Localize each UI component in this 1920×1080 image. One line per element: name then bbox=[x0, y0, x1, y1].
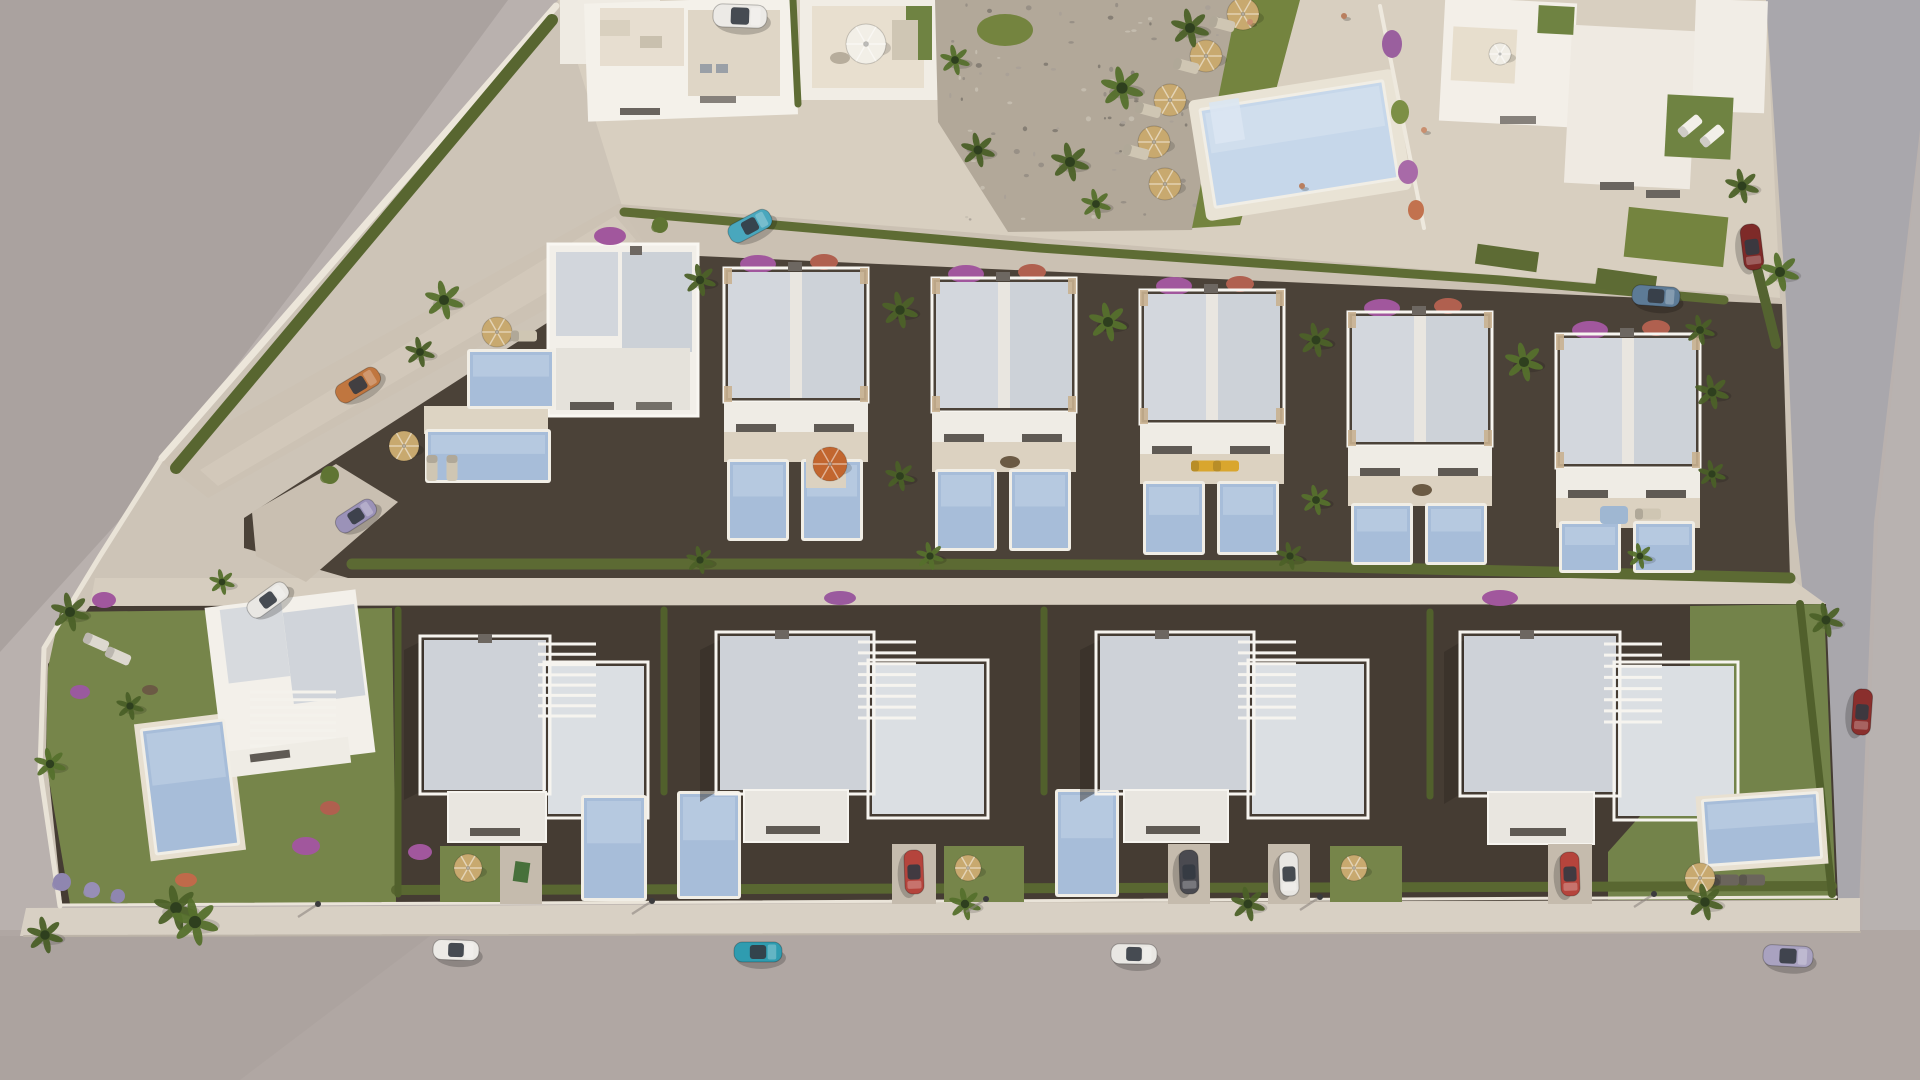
ac-unit bbox=[700, 64, 712, 73]
aerial-render-canvas bbox=[0, 0, 1920, 1080]
walkway-bougainvillea bbox=[1482, 590, 1518, 606]
big-villa-pool bbox=[581, 795, 647, 901]
bougainvillea bbox=[175, 873, 197, 887]
big-villa-wing bbox=[548, 666, 644, 814]
villa1-pool bbox=[467, 349, 555, 409]
bougainvillea bbox=[292, 837, 320, 855]
window-strip bbox=[1600, 182, 1634, 190]
window-strip bbox=[766, 826, 820, 834]
roof-sofa bbox=[640, 36, 662, 48]
bougainvillea bbox=[70, 685, 90, 699]
window-strip bbox=[570, 402, 614, 410]
dining-set bbox=[1000, 456, 1020, 468]
lounger bbox=[1635, 509, 1661, 520]
window-strip bbox=[1500, 116, 1536, 124]
big-villa-pool bbox=[677, 791, 741, 899]
walkway-bougainvillea bbox=[824, 591, 856, 605]
roof-table bbox=[830, 52, 850, 64]
flower-bush bbox=[1382, 30, 1402, 58]
window-strip bbox=[1146, 826, 1200, 834]
bush bbox=[1391, 100, 1409, 124]
lounger bbox=[427, 455, 438, 481]
roof-garden bbox=[1664, 94, 1733, 159]
grass-patch bbox=[977, 14, 1033, 46]
corner-villa-pool bbox=[140, 718, 241, 856]
window-strip bbox=[1510, 828, 1566, 836]
green-bin bbox=[513, 861, 531, 883]
dining-set bbox=[1412, 484, 1432, 496]
roof-garden bbox=[1537, 5, 1574, 35]
villa1-roof bbox=[556, 252, 618, 336]
villa1-pool bbox=[425, 429, 551, 483]
hedge bbox=[793, 0, 798, 104]
lounger bbox=[511, 331, 537, 342]
screenshot-root: Aerial 3D render of a white villa develo… bbox=[0, 0, 1920, 1080]
chimney bbox=[1155, 630, 1169, 639]
ac-unit bbox=[716, 64, 728, 73]
teal-car-street bbox=[734, 942, 786, 969]
bougainvillea bbox=[408, 844, 432, 860]
chimney bbox=[775, 630, 789, 639]
bougainvillea bbox=[92, 592, 116, 608]
lounger bbox=[447, 455, 458, 481]
big-villa-pool-horizontal bbox=[1701, 791, 1823, 867]
window-strip bbox=[636, 402, 672, 410]
window-strip bbox=[470, 828, 520, 836]
chimney bbox=[478, 634, 492, 643]
villa1-chimney bbox=[630, 246, 642, 255]
window-strip bbox=[700, 96, 736, 103]
hot-tub bbox=[1600, 506, 1628, 524]
big-villa-pool bbox=[1055, 789, 1119, 897]
big-villa-roof bbox=[424, 640, 546, 790]
big-villa-roof bbox=[1464, 636, 1616, 792]
lounger bbox=[1739, 875, 1765, 886]
villa1-lower-roof bbox=[556, 348, 690, 410]
big-villa-front bbox=[1488, 792, 1594, 844]
bougainvillea bbox=[594, 227, 626, 245]
bougainvillea bbox=[320, 801, 340, 815]
flower-bush bbox=[1398, 160, 1418, 184]
chimney bbox=[1520, 630, 1534, 639]
window-strip bbox=[620, 108, 660, 115]
big-villa-front bbox=[744, 790, 848, 842]
villa1-roof bbox=[622, 252, 692, 352]
corner-villa-roof bbox=[283, 604, 366, 704]
big-villa-front bbox=[1124, 790, 1228, 842]
big-villa-roof bbox=[720, 636, 870, 790]
yellow-lounger bbox=[1213, 461, 1239, 472]
roof-sofa bbox=[892, 20, 918, 60]
garden-table bbox=[142, 685, 158, 695]
window-strip bbox=[1646, 190, 1680, 198]
flower-bush bbox=[1408, 200, 1424, 220]
lawn-patch bbox=[1624, 207, 1729, 267]
big-villa-roof bbox=[1100, 636, 1250, 790]
roof-sofa bbox=[600, 20, 630, 36]
